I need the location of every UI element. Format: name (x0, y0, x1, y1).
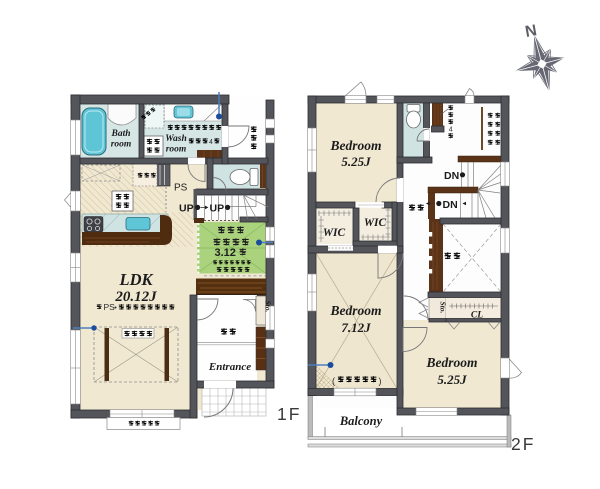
svg-text:DN: DN (443, 199, 458, 211)
svg-text:PS: PS (104, 302, 116, 312)
svg-text:Sto.: Sto. (264, 301, 273, 313)
svg-text:WIC: WIC (364, 217, 387, 229)
svg-text:UP: UP (179, 203, 194, 215)
svg-text:Bath: Bath (110, 129, 130, 139)
svg-text:): ) (379, 376, 382, 386)
svg-text:Balcony: Balcony (339, 414, 383, 428)
svg-text:2F: 2F (511, 434, 535, 454)
svg-text:UP: UP (210, 203, 225, 215)
svg-text:4: 4 (449, 127, 453, 134)
svg-text:Bedroom: Bedroom (329, 138, 381, 153)
svg-text:WIC: WIC (323, 227, 346, 239)
svg-text:Bedroom: Bedroom (425, 355, 477, 370)
svg-text:7.12J: 7.12J (341, 320, 371, 335)
svg-text:4: 4 (209, 139, 213, 146)
svg-text:Sto.: Sto. (439, 302, 448, 314)
svg-text:3.12: 3.12 (215, 247, 236, 259)
svg-text:Bedroom: Bedroom (329, 303, 381, 318)
svg-text:room: room (166, 145, 187, 155)
svg-text:room: room (111, 140, 132, 150)
svg-text:PS: PS (174, 183, 188, 194)
svg-text:1F: 1F (277, 404, 301, 424)
svg-text:LDK: LDK (119, 270, 154, 289)
svg-text:CL: CL (471, 311, 483, 321)
svg-text:5.25J: 5.25J (437, 372, 467, 387)
svg-text:5.25J: 5.25J (341, 154, 371, 169)
svg-text:DN: DN (444, 170, 459, 182)
svg-text:20.12J: 20.12J (114, 289, 157, 305)
svg-text:Entrance: Entrance (208, 361, 251, 373)
svg-text:(: ( (332, 376, 335, 386)
svg-text:Wash: Wash (165, 134, 186, 144)
